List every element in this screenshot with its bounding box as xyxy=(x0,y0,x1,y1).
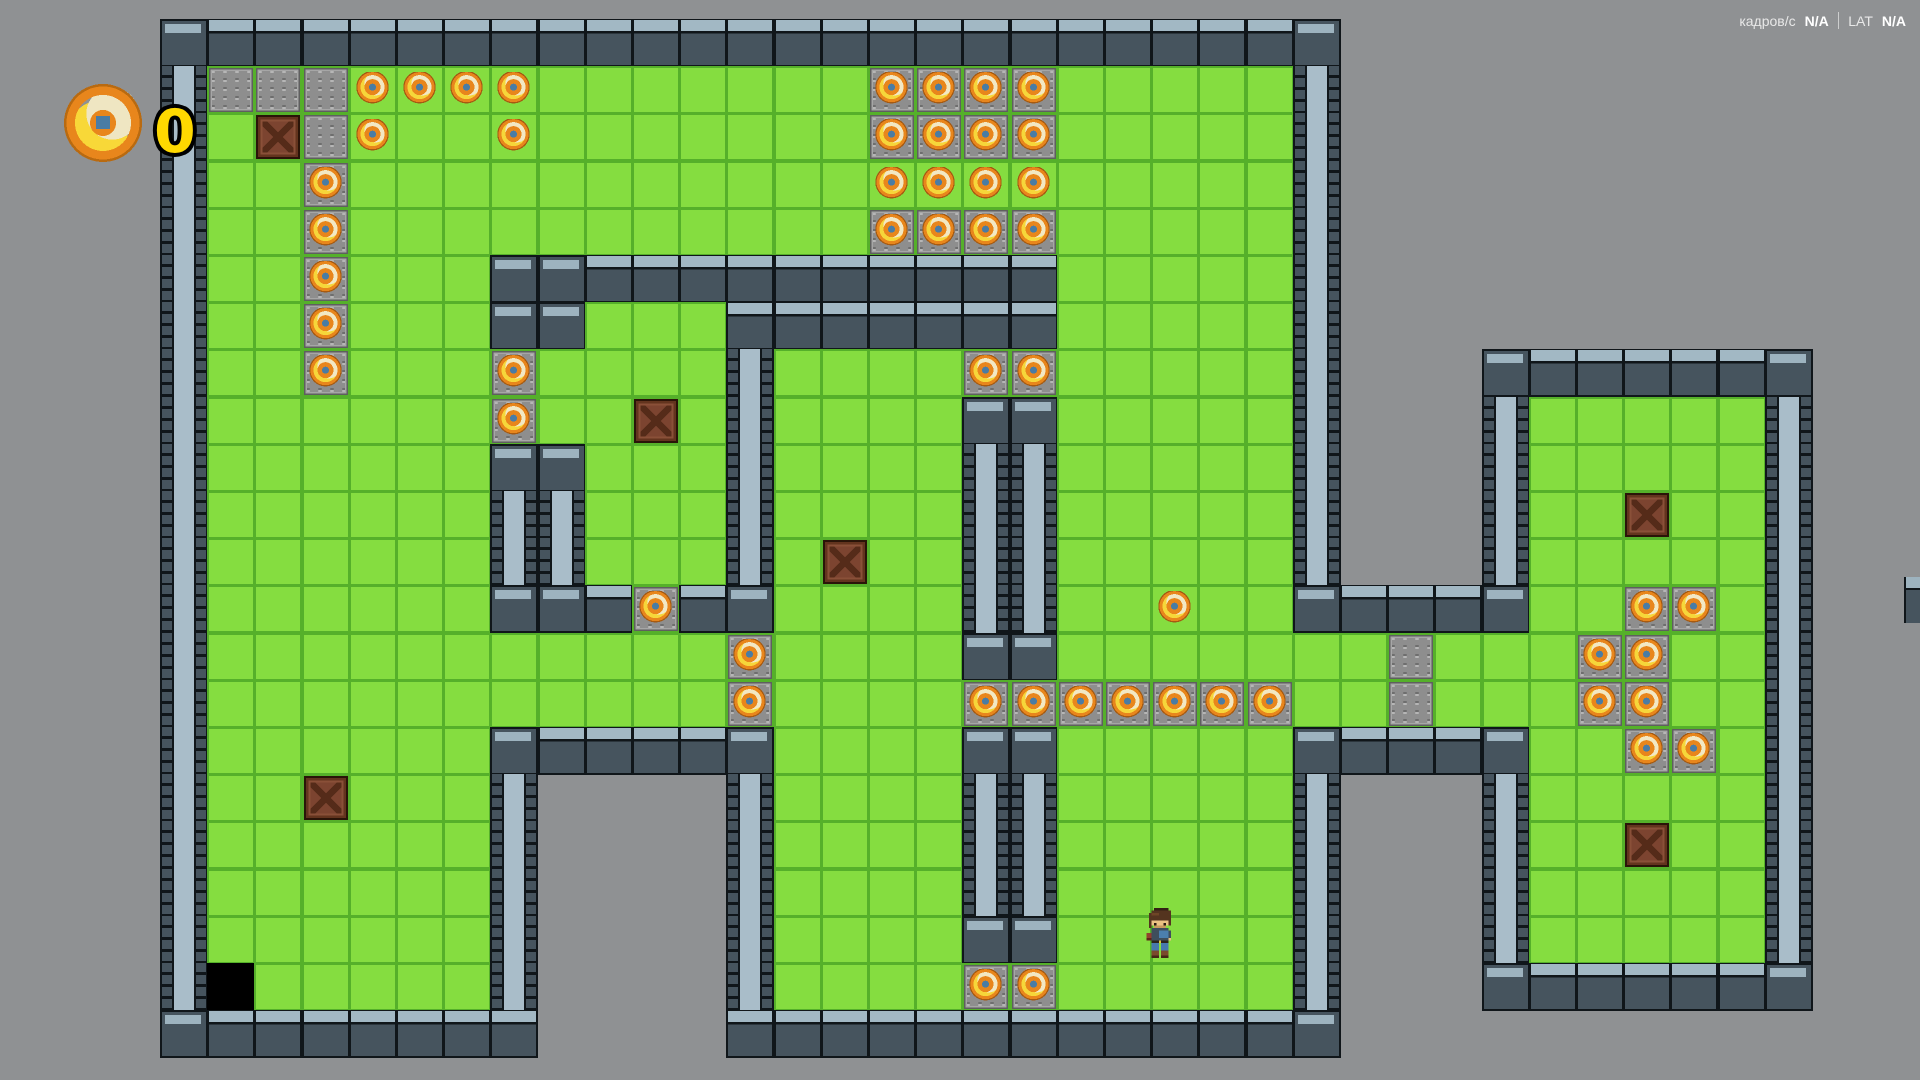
grass-tile xyxy=(1482,633,1530,681)
grass-tile xyxy=(349,491,397,539)
gravel-plate-tile xyxy=(1387,633,1435,681)
grass-tile xyxy=(1198,302,1246,350)
grass-tile xyxy=(1104,113,1152,161)
wall-brick-tile xyxy=(396,19,444,67)
coin-on-gravel xyxy=(1576,680,1624,728)
grass-tile xyxy=(254,491,302,539)
wall-block-tile xyxy=(726,727,774,775)
grass-tile xyxy=(632,680,680,728)
wall-block-tile xyxy=(490,302,538,350)
coin-on-gravel xyxy=(1246,680,1294,728)
coin-on-gravel xyxy=(1010,66,1058,114)
coin-on-gravel xyxy=(490,349,538,397)
grass-tile xyxy=(443,727,491,775)
wall-pillar-tile xyxy=(1765,585,1813,633)
grass-tile xyxy=(632,538,680,586)
wall-pillar-tile xyxy=(1293,821,1341,869)
grass-tile xyxy=(1198,633,1246,681)
grass-tile xyxy=(774,349,822,397)
coin-on-gravel xyxy=(962,66,1010,114)
grass-tile xyxy=(679,161,727,209)
grass-tile xyxy=(679,113,727,161)
grass-tile xyxy=(254,774,302,822)
grass-tile xyxy=(868,916,916,964)
wall-pillar-tile xyxy=(1765,680,1813,728)
grass-tile xyxy=(1718,585,1766,633)
wall-block-tile xyxy=(538,255,586,303)
grass-tile xyxy=(1104,821,1152,869)
wall-pillar-tile xyxy=(490,821,538,869)
grass-tile xyxy=(443,869,491,917)
fps-value: N/A xyxy=(1805,13,1829,29)
grass-tile xyxy=(1246,113,1294,161)
gravel-plate-tile xyxy=(302,66,350,114)
wall-pillar-tile xyxy=(1010,444,1058,492)
coin-on-gravel xyxy=(915,66,963,114)
grass-tile xyxy=(490,633,538,681)
grass-tile xyxy=(632,491,680,539)
grass-tile xyxy=(396,538,444,586)
wall-pillar-tile xyxy=(490,491,538,539)
grass-tile xyxy=(1718,397,1766,445)
grass-tile xyxy=(1198,585,1246,633)
coin-on-gravel xyxy=(1198,680,1246,728)
coin xyxy=(875,72,908,105)
coin xyxy=(1583,686,1616,719)
crate xyxy=(256,115,300,159)
grass-tile xyxy=(821,916,869,964)
coin xyxy=(875,167,908,200)
grass-tile xyxy=(726,113,774,161)
grass-tile xyxy=(396,774,444,822)
coin-on-gravel xyxy=(1623,680,1671,728)
grass-tile xyxy=(1718,727,1766,775)
grass-tile xyxy=(774,397,822,445)
grass-tile xyxy=(538,633,586,681)
grass-tile xyxy=(1246,727,1294,775)
grass-tile xyxy=(821,444,869,492)
grass-tile xyxy=(1198,774,1246,822)
wall-brick-tile xyxy=(538,727,586,775)
grass-tile xyxy=(585,161,633,209)
wall-block-tile xyxy=(1293,585,1341,633)
coin-on-gravel xyxy=(1576,633,1624,681)
wall-pillar-tile xyxy=(490,774,538,822)
grass-tile xyxy=(915,444,963,492)
grass-tile xyxy=(1670,633,1718,681)
coin-on-gravel xyxy=(726,633,774,681)
wall-brick-tile xyxy=(679,19,727,67)
coin-on-gravel xyxy=(962,113,1010,161)
wall-block-tile xyxy=(962,727,1010,775)
grass-tile xyxy=(1151,255,1199,303)
fps-label: кадров/с xyxy=(1739,13,1795,29)
grass-tile xyxy=(349,585,397,633)
wall-pillar-tile xyxy=(962,774,1010,822)
wall-brick-tile xyxy=(726,19,774,67)
coin xyxy=(497,403,530,436)
wall-brick-tile xyxy=(774,1010,822,1058)
grass-tile xyxy=(1198,444,1246,492)
grass-tile xyxy=(349,302,397,350)
coin-on-gravel xyxy=(1010,680,1058,728)
grass-tile xyxy=(821,397,869,445)
grass-tile xyxy=(302,821,350,869)
grass-tile xyxy=(679,444,727,492)
grass-tile xyxy=(1529,727,1577,775)
wall-pillar-tile xyxy=(962,444,1010,492)
coin xyxy=(1630,639,1663,672)
coin xyxy=(1630,591,1663,624)
grass-tile xyxy=(1576,916,1624,964)
wall-brick-tile xyxy=(868,19,916,67)
grass-tile xyxy=(1104,302,1152,350)
grass-tile xyxy=(821,633,869,681)
wall-pillar-tile xyxy=(726,869,774,917)
grass-tile xyxy=(538,208,586,256)
wall-pillar-tile xyxy=(1293,349,1341,397)
grass-tile xyxy=(1670,821,1718,869)
wall-block-tile xyxy=(490,585,538,633)
hud-divider xyxy=(1838,12,1840,29)
grass-tile xyxy=(821,680,869,728)
grass-tile xyxy=(774,727,822,775)
grass-tile xyxy=(585,397,633,445)
wall-pillar-tile xyxy=(1293,113,1341,161)
grass-tile xyxy=(538,349,586,397)
coin xyxy=(1158,591,1191,624)
player-sprite xyxy=(1144,908,1176,958)
wall-pillar-tile xyxy=(160,963,208,1011)
grass-tile xyxy=(254,255,302,303)
wall-pillar-tile xyxy=(1765,727,1813,775)
coin-on-grass xyxy=(962,161,1010,209)
grass-tile xyxy=(679,66,727,114)
coin-on-gravel xyxy=(1010,208,1058,256)
coin xyxy=(922,119,955,152)
grass-tile xyxy=(1151,727,1199,775)
coin xyxy=(497,119,530,152)
grass-tile xyxy=(1293,680,1341,728)
wall-brick-tile xyxy=(1104,1010,1152,1058)
grass-tile xyxy=(538,680,586,728)
grass-tile xyxy=(1434,633,1482,681)
grass-tile xyxy=(1198,491,1246,539)
coin xyxy=(403,72,436,105)
wall-brick-tile xyxy=(538,19,586,67)
wall-pillar-tile xyxy=(160,538,208,586)
grass-tile xyxy=(1529,397,1577,445)
grass-tile xyxy=(1246,66,1294,114)
grass-tile xyxy=(774,66,822,114)
wall-block-tile xyxy=(1010,727,1058,775)
grass-tile xyxy=(1670,397,1718,445)
wall-brick-tile xyxy=(585,727,633,775)
wall-pillar-tile xyxy=(962,821,1010,869)
coin xyxy=(1205,686,1238,719)
coin-on-grass xyxy=(1151,585,1199,633)
wall-block-tile xyxy=(538,302,586,350)
coin xyxy=(969,167,1002,200)
wall-brick-tile xyxy=(1151,1010,1199,1058)
grass-tile xyxy=(302,869,350,917)
crate xyxy=(1623,491,1671,539)
wall-brick-tile xyxy=(1670,349,1718,397)
grass-tile xyxy=(254,821,302,869)
grass-tile xyxy=(585,113,633,161)
wall-pillar-tile xyxy=(726,349,774,397)
grass-tile xyxy=(1482,680,1530,728)
grass-tile xyxy=(1623,397,1671,445)
grass-tile xyxy=(821,869,869,917)
wall-pillar-tile xyxy=(160,208,208,256)
grass-tile xyxy=(302,963,350,1011)
wall-block-tile xyxy=(962,633,1010,681)
grass-tile xyxy=(1151,774,1199,822)
grass-tile xyxy=(538,397,586,445)
grass-tile xyxy=(396,821,444,869)
grass-tile xyxy=(679,491,727,539)
coin-on-grass xyxy=(1010,161,1058,209)
grass-tile xyxy=(207,491,255,539)
grass-tile xyxy=(1151,113,1199,161)
grass-tile xyxy=(1529,869,1577,917)
wall-pillar-tile xyxy=(1010,491,1058,539)
grass-tile xyxy=(1529,916,1577,964)
wall-pillar-tile xyxy=(160,491,208,539)
grass-tile xyxy=(1623,916,1671,964)
wall-block-tile xyxy=(1293,727,1341,775)
wall-brick-tile xyxy=(915,302,963,350)
black-pit-tile xyxy=(207,963,255,1011)
crate xyxy=(302,774,350,822)
coin xyxy=(969,119,1002,152)
wall-brick-tile xyxy=(1623,963,1671,1011)
grass-tile xyxy=(443,821,491,869)
grass-tile xyxy=(349,727,397,775)
grass-tile xyxy=(868,869,916,917)
wall-pillar-tile xyxy=(1010,585,1058,633)
crate xyxy=(632,397,680,445)
wall-block-tile xyxy=(538,585,586,633)
grass-tile xyxy=(1104,774,1152,822)
coin xyxy=(1111,686,1144,719)
grass-tile xyxy=(207,916,255,964)
wall-brick-tile xyxy=(632,255,680,303)
grass-tile xyxy=(1151,538,1199,586)
wall-block-tile xyxy=(538,444,586,492)
grass-tile xyxy=(1057,208,1105,256)
grass-tile xyxy=(538,161,586,209)
wall-brick-tile xyxy=(1010,255,1058,303)
grass-tile xyxy=(396,208,444,256)
grass-tile xyxy=(443,680,491,728)
wall-pillar-tile xyxy=(1293,66,1341,114)
grass-tile xyxy=(1529,821,1577,869)
gravel-plate-tile xyxy=(207,66,255,114)
coin xyxy=(969,214,1002,247)
grass-tile xyxy=(1246,208,1294,256)
grass-tile xyxy=(302,633,350,681)
coin-on-gravel xyxy=(1057,680,1105,728)
grass-tile xyxy=(1198,349,1246,397)
grass-tile xyxy=(1718,491,1766,539)
wall-pillar-tile xyxy=(962,869,1010,917)
grass-tile xyxy=(585,66,633,114)
wall-brick-tile xyxy=(207,19,255,67)
coin-on-gravel xyxy=(1151,680,1199,728)
wall-block-tile xyxy=(726,585,774,633)
grass-tile xyxy=(632,349,680,397)
grass-tile xyxy=(207,727,255,775)
coin-on-gravel xyxy=(1010,963,1058,1011)
wall-pillar-tile xyxy=(490,963,538,1011)
grass-tile xyxy=(349,538,397,586)
grass-tile xyxy=(1104,397,1152,445)
grass-tile xyxy=(821,113,869,161)
wall-brick-tile xyxy=(821,255,869,303)
grass-tile xyxy=(1104,491,1152,539)
grass-tile xyxy=(679,538,727,586)
grass-tile xyxy=(1057,397,1105,445)
grass-tile xyxy=(1198,869,1246,917)
wall-block-tile xyxy=(1293,1010,1341,1058)
wall-pillar-tile xyxy=(726,444,774,492)
coin xyxy=(309,261,342,294)
wall-brick-tile xyxy=(679,727,727,775)
wall-brick-tile xyxy=(1340,727,1388,775)
coin xyxy=(733,639,766,672)
grass-tile xyxy=(1057,444,1105,492)
grass-tile xyxy=(1104,161,1152,209)
grass-tile xyxy=(774,585,822,633)
grass-tile xyxy=(1057,491,1105,539)
grass-tile xyxy=(1718,774,1766,822)
grass-tile xyxy=(632,113,680,161)
coin xyxy=(356,119,389,152)
grass-tile xyxy=(443,633,491,681)
grass-tile xyxy=(1198,821,1246,869)
coin-on-gravel xyxy=(490,397,538,445)
wall-block-tile xyxy=(1482,585,1530,633)
crate xyxy=(304,776,348,820)
grass-tile xyxy=(443,349,491,397)
coin xyxy=(497,355,530,388)
coin xyxy=(1017,72,1050,105)
wall-pillar-tile xyxy=(726,538,774,586)
grass-tile xyxy=(1670,916,1718,964)
grass-tile xyxy=(207,680,255,728)
wall-pillar-tile xyxy=(1765,491,1813,539)
grass-tile xyxy=(632,208,680,256)
grass-tile xyxy=(774,633,822,681)
wall-pillar-tile xyxy=(1765,397,1813,445)
crate xyxy=(823,540,867,584)
coin xyxy=(309,308,342,341)
wall-brick-tile xyxy=(962,302,1010,350)
wall-brick-tile xyxy=(1576,349,1624,397)
grass-tile xyxy=(1151,302,1199,350)
wall-brick-tile xyxy=(1198,1010,1246,1058)
game-viewport[interactable]: 0 кадров/с N/A LAT N/A xyxy=(0,0,1920,1080)
wall-brick-tile xyxy=(1529,963,1577,1011)
wall-pillar-tile xyxy=(1293,491,1341,539)
grass-tile xyxy=(585,302,633,350)
grass-tile xyxy=(490,161,538,209)
wall-brick-tile xyxy=(585,585,633,633)
wall-brick-tile xyxy=(774,302,822,350)
grass-tile xyxy=(1104,538,1152,586)
wall-brick-tile xyxy=(1623,349,1671,397)
grass-tile xyxy=(1576,727,1624,775)
wall-brick-tile xyxy=(962,19,1010,67)
grass-tile xyxy=(915,349,963,397)
wall-block-tile xyxy=(1765,963,1813,1011)
grass-tile xyxy=(1340,633,1388,681)
coin xyxy=(1583,639,1616,672)
wall-brick-tile xyxy=(632,19,680,67)
grass-tile xyxy=(396,869,444,917)
wall-block-tile xyxy=(1010,397,1058,445)
wall-pillar-tile xyxy=(1482,774,1530,822)
wall-pillar-tile xyxy=(160,916,208,964)
grass-tile xyxy=(821,161,869,209)
grass-tile xyxy=(726,208,774,256)
grass-tile xyxy=(396,161,444,209)
grass-tile xyxy=(254,208,302,256)
coin-on-grass xyxy=(349,113,397,161)
wall-pillar-tile xyxy=(1293,397,1341,445)
grass-tile xyxy=(207,397,255,445)
wall-pillar-tile xyxy=(1482,821,1530,869)
grass-tile xyxy=(1246,774,1294,822)
wall-brick-tile xyxy=(396,1010,444,1058)
grass-tile xyxy=(1529,680,1577,728)
grass-tile xyxy=(632,66,680,114)
grass-tile xyxy=(396,444,444,492)
grass-tile xyxy=(1151,349,1199,397)
wall-pillar-tile xyxy=(1765,821,1813,869)
wall-block-tile xyxy=(160,19,208,67)
coin xyxy=(1017,214,1050,247)
wall-pillar-tile xyxy=(1293,869,1341,917)
wall-pillar-tile xyxy=(726,963,774,1011)
wall-pillar-tile xyxy=(1765,774,1813,822)
grass-tile xyxy=(915,869,963,917)
grass-tile xyxy=(915,397,963,445)
wall-brick-tile xyxy=(1198,19,1246,67)
coin-on-grass xyxy=(915,161,963,209)
coin xyxy=(969,686,1002,719)
coin xyxy=(1630,733,1663,766)
coin xyxy=(1630,686,1663,719)
grass-tile xyxy=(821,821,869,869)
wall-block-tile xyxy=(1482,963,1530,1011)
grass-tile xyxy=(396,491,444,539)
grass-tile xyxy=(254,869,302,917)
wall-pillar-tile xyxy=(726,821,774,869)
wall-pillar-tile xyxy=(1010,538,1058,586)
wall-brick-tile xyxy=(349,19,397,67)
coin-on-gravel xyxy=(868,66,916,114)
coin xyxy=(450,72,483,105)
coin-on-gravel xyxy=(962,208,1010,256)
grass-tile xyxy=(1198,66,1246,114)
coin-on-gravel xyxy=(302,302,350,350)
wall-brick-tile xyxy=(1387,727,1435,775)
coin-icon-center xyxy=(96,116,110,129)
grass-tile xyxy=(396,680,444,728)
